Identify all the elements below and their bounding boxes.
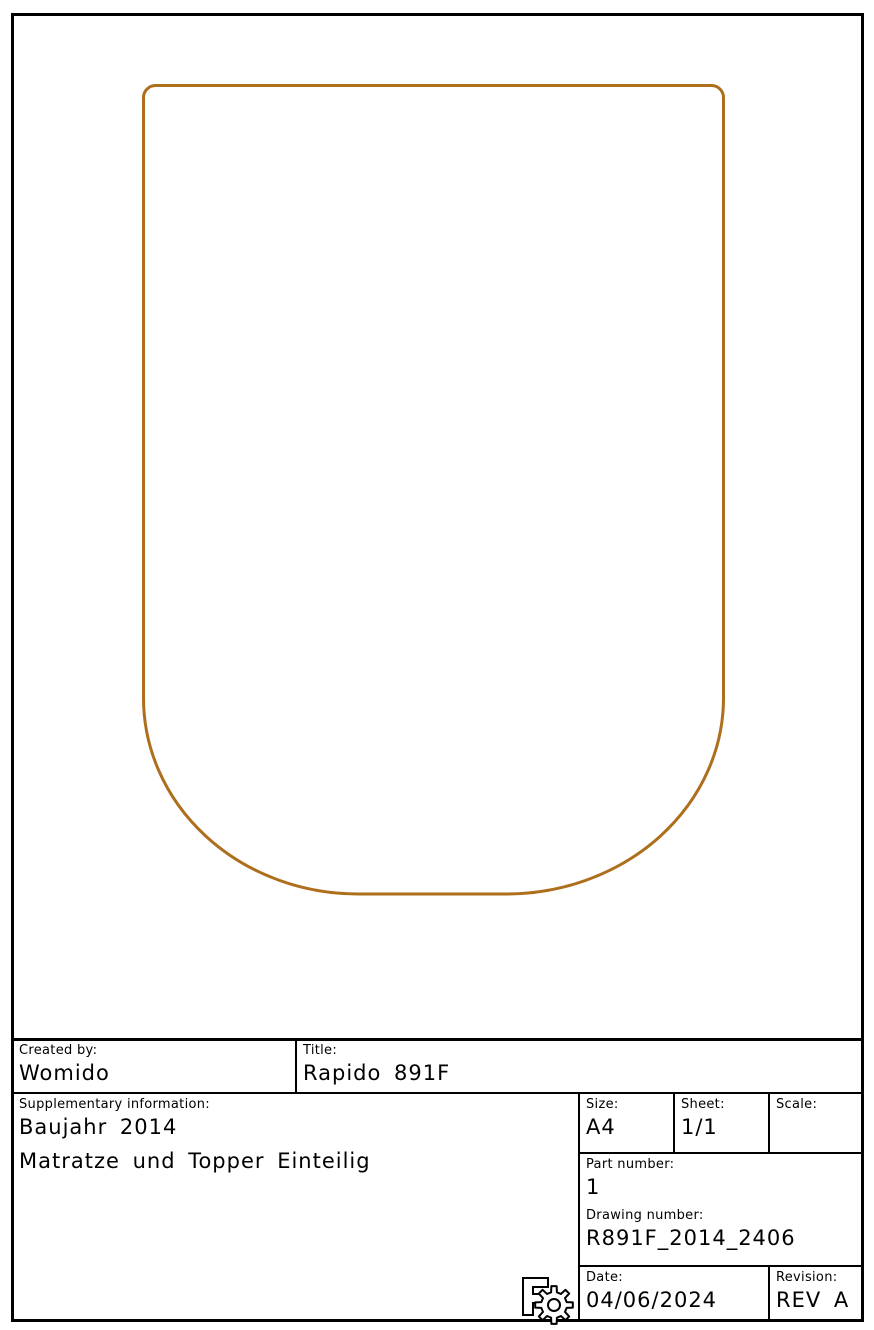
revision-label: Revision: <box>776 1270 862 1285</box>
size-label: Size: <box>586 1097 671 1112</box>
created-by-cell: Created by: Womido <box>13 1040 293 1092</box>
part-number-cell: Part number: 1 Drawing number: R891F_201… <box>580 1154 862 1263</box>
mattress-outline-path <box>144 86 724 895</box>
title-cell: Title: Rapido 891F <box>297 1040 862 1092</box>
sheet-value: 1/1 <box>681 1115 766 1139</box>
created-by-value: Womido <box>19 1061 293 1085</box>
date-cell: Date: 04/06/2024 <box>580 1267 766 1320</box>
scale-label: Scale: <box>776 1097 862 1112</box>
revision-value: REV A <box>776 1288 862 1312</box>
drawing-number-label: Drawing number: <box>586 1208 862 1223</box>
size-value: A4 <box>586 1115 671 1139</box>
scale-cell: Scale: <box>770 1094 862 1150</box>
part-number-label: Part number: <box>586 1157 862 1172</box>
sheet-label: Sheet: <box>681 1097 766 1112</box>
title-label: Title: <box>303 1043 862 1058</box>
date-label: Date: <box>586 1270 766 1285</box>
revision-cell: Revision: REV A <box>770 1267 862 1320</box>
supplementary-cell: Supplementary information: Baujahr 2014 … <box>13 1094 576 1320</box>
supplementary-line-1: Baujahr 2014 <box>19 1115 576 1139</box>
date-value: 04/06/2024 <box>586 1288 766 1312</box>
supplementary-line-2: Matratze und Topper Einteilig <box>19 1149 576 1173</box>
supplementary-label: Supplementary information: <box>19 1097 576 1112</box>
drawing-sheet: Created by: Womido Title: Rapido 891F Su… <box>0 0 874 1330</box>
sheet-cell: Sheet: 1/1 <box>675 1094 766 1150</box>
size-cell: Size: A4 <box>580 1094 671 1150</box>
created-by-label: Created by: <box>19 1043 293 1058</box>
page-title: Rapido 891F <box>303 1061 862 1085</box>
drawing-number-value: R891F_2014_2406 <box>586 1226 862 1250</box>
part-number-value: 1 <box>586 1175 862 1199</box>
